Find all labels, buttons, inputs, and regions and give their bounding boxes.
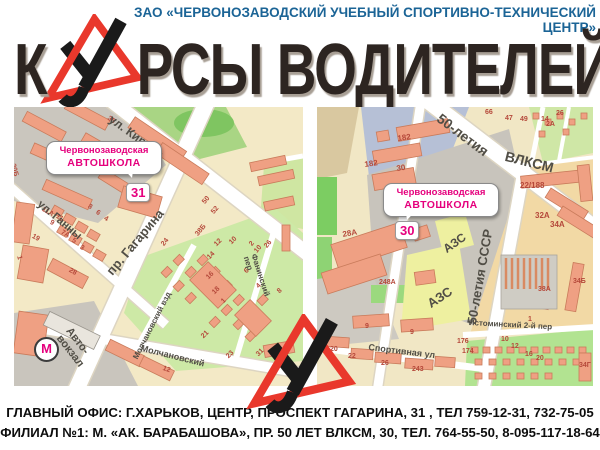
metro-icon: М [34,337,59,362]
school-callout: Червонозаводская АВТОШКОЛА [383,183,499,217]
building-number: 243 [412,366,424,373]
building-number: 9 [365,323,369,330]
building-number: 12 [511,343,519,350]
title-text-after: РСЫ ВОДИТЕЛЕЙ [137,33,600,106]
building-number: 16 [525,351,533,358]
u-triangle-logo-icon [236,314,364,416]
building-number: 9 [410,329,414,336]
u-triangle-logo-icon [39,14,143,110]
building-number: 30 [396,164,406,173]
school-callout-line1: Червонозаводская [389,187,493,199]
building-number: 34Б [573,278,586,285]
building-number: 66 [485,109,493,116]
building-number: 22/188 [520,182,544,190]
building-number: 10 [501,336,509,343]
school-callout-line2: АВТОШКОЛА [52,157,156,170]
building-number: 2А [546,121,555,128]
building-number: 47 [505,115,513,122]
address-marker: 31 [126,183,150,202]
building-number: 176 [457,338,469,345]
building-number: 26 [556,110,564,117]
building-number: 34Г [579,362,591,369]
building-number: 174 [462,348,474,355]
building-number: 248А [379,279,396,286]
title-text-before: К [14,33,47,106]
footer-line-branch: ФИЛИАЛ №1: М. «АК. БАРАБАШОВА», ПР. 50 Л… [0,423,600,443]
building-number: 38А [538,286,551,293]
building-number: 20 [536,355,544,362]
main-title: К РСЫ ВОДИТЕЛЕЙ [14,22,600,106]
school-callout-line2: АВТОШКОЛА [389,199,493,212]
address-marker: 30 [395,221,419,240]
building-number: 49 [520,116,528,123]
building-number: 32А [535,212,550,220]
building-number: 34А [550,221,565,229]
building-number: 26 [381,360,389,367]
school-callout-line1: Червонозаводская [52,145,156,157]
driving-school-flyer: ЗАО «ЧЕРВОНОЗАВОДСКИЙ УЧЕБНЫЙ СПОРТИВНО-… [0,0,600,450]
school-callout: Червонозаводская АВТОШКОЛА [46,141,162,175]
